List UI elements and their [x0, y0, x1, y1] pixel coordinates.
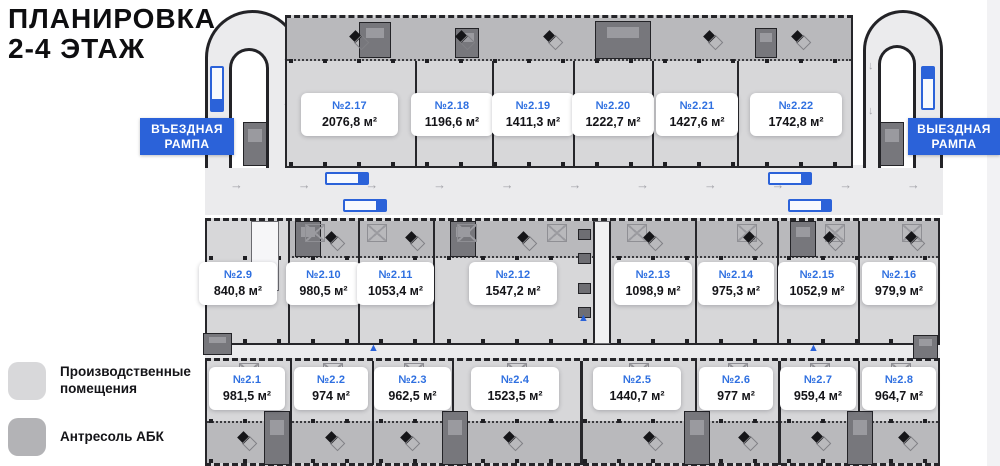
unit-area: 981,5 м²	[212, 388, 282, 404]
stairs-icon: ▲	[808, 342, 819, 354]
unit-number: №2.18	[414, 100, 490, 114]
dock-icon	[505, 433, 521, 449]
stairs-icon: ▲	[368, 342, 379, 354]
unit-number: №2.7	[783, 374, 853, 388]
unit-label: №2.4 1523,5 м²	[471, 367, 559, 410]
unit-area: 977 м²	[702, 388, 770, 404]
unit-area: 1440,7 м²	[596, 388, 678, 404]
unit-area: 1053,4 м²	[360, 283, 431, 299]
dock-icon	[351, 32, 367, 48]
screen-edge	[987, 0, 1000, 466]
dock-icon	[705, 32, 721, 48]
entry-ramp-stairwell	[243, 122, 267, 166]
unit-area: 959,4 м²	[783, 388, 853, 404]
dock-icon	[402, 433, 418, 449]
unit-area: 1098,9 м²	[617, 283, 689, 299]
unit-label: №2.11 1053,4 м²	[357, 262, 434, 305]
unit-area: 2076,8 м²	[304, 114, 395, 130]
dock-icon	[457, 32, 473, 48]
arrow-right-icon: →	[230, 178, 243, 191]
unit-label: №2.17 2076,8 м²	[301, 93, 398, 136]
unit-label: №2.22 1742,8 м²	[750, 93, 842, 136]
corridor-door	[578, 253, 591, 264]
truck-icon	[788, 199, 832, 212]
corridor-door	[578, 283, 591, 294]
unit-area: 1523,5 м²	[474, 388, 556, 404]
arrow-right-icon: →	[568, 178, 581, 191]
unit-label: №2.7 959,4 м²	[780, 367, 856, 410]
legend-swatch-mezzanine	[8, 418, 46, 456]
unit-area: 840,8 м²	[202, 283, 274, 299]
central-corridor	[593, 221, 611, 344]
page-title: ПЛАНИРОВКА 2-4 ЭТАЖ	[8, 4, 216, 64]
dock-icon	[645, 433, 661, 449]
unit-number: №2.16	[865, 269, 933, 283]
page-title-line2: 2-4 ЭТАЖ	[8, 34, 216, 64]
unit-area: 1052,9 м²	[781, 283, 853, 299]
dock-icon	[907, 233, 923, 249]
lane-arrow-icon: ↓	[868, 105, 874, 117]
legend-item-production: Производственные помещения	[8, 362, 220, 400]
arrow-right-icon: →	[907, 178, 920, 191]
dock-icon	[793, 32, 809, 48]
dock-door	[367, 224, 387, 242]
unit-label: №2.3 962,5 м²	[374, 367, 451, 410]
dock-icon	[900, 433, 916, 449]
stairwell	[790, 221, 816, 257]
dock-icon	[407, 233, 423, 249]
unit-area: 979,9 м²	[865, 283, 933, 299]
arrow-right-icon: →	[636, 178, 649, 191]
top-building-block	[285, 15, 853, 168]
unit-number: №2.17	[304, 100, 395, 114]
unit-area: 974 м²	[297, 388, 365, 404]
unit-number: №2.15	[781, 269, 853, 283]
truck-icon	[921, 66, 935, 110]
truck-icon	[325, 172, 369, 185]
dock-icon	[745, 233, 761, 249]
unit-label: №2.12 1547,2 м²	[469, 262, 557, 305]
legend-label: Антресоль АБК	[60, 429, 220, 446]
arrow-right-icon: →	[501, 178, 514, 191]
unit-number: №2.21	[659, 100, 735, 114]
stairwell	[442, 411, 468, 465]
unit-area: 1742,8 м²	[753, 114, 839, 130]
arrow-right-icon: →	[298, 178, 311, 191]
dock-icon	[545, 32, 561, 48]
unit-area: 962,5 м²	[377, 388, 448, 404]
arrow-right-icon: →	[704, 178, 717, 191]
dock-door	[547, 224, 567, 242]
legend-swatch-production	[8, 362, 46, 400]
unit-area: 1411,3 м²	[495, 114, 571, 130]
stairwell	[264, 411, 290, 465]
unit-label: №2.18 1196,6 м²	[411, 93, 493, 136]
unit-label: №2.5 1440,7 м²	[593, 367, 681, 410]
elevator-block	[203, 333, 232, 355]
dock-icon	[645, 233, 661, 249]
floor-plan: ПЛАНИРОВКА 2-4 ЭТАЖ ↑ ↑ ↓ ↓ → →	[0, 0, 1000, 466]
unit-number: №2.11	[360, 269, 431, 283]
unit-number: №2.3	[377, 374, 448, 388]
unit-area: 975,3 м²	[701, 283, 771, 299]
dock-icon	[825, 233, 841, 249]
unit-number: №2.2	[297, 374, 365, 388]
dock-icon	[740, 433, 756, 449]
unit-number: №2.19	[495, 100, 571, 114]
corridor-door	[578, 229, 591, 240]
unit-number: №2.14	[701, 269, 771, 283]
dock-icon	[327, 433, 343, 449]
unit-number: №2.4	[474, 374, 556, 388]
legend-item-mezzanine: Антресоль АБК	[8, 418, 220, 456]
lane-arrow-icon: ↓	[868, 60, 874, 72]
unit-label: №2.2 974 м²	[294, 367, 368, 410]
unit-number: №2.8	[865, 374, 933, 388]
dock-icon	[813, 433, 829, 449]
unit-area: 1196,6 м²	[414, 114, 490, 130]
exit-ramp-badge: ВЫЕЗДНАЯ РАМПА	[908, 118, 1000, 155]
unit-label: №2.14 975,3 м²	[698, 262, 774, 305]
dock-door	[305, 224, 325, 242]
unit-label: №2.1 981,5 м²	[209, 367, 285, 410]
stairwell	[847, 411, 873, 465]
dock-door	[457, 224, 477, 242]
unit-label: №2.19 1411,3 м²	[492, 93, 574, 136]
unit-label: №2.13 1098,9 м²	[614, 262, 692, 305]
stairwell	[684, 411, 710, 465]
unit-label: №2.20 1222,7 м²	[572, 93, 654, 136]
unit-number: №2.5	[596, 374, 678, 388]
stairs-icon: ▲	[578, 312, 589, 324]
unit-area: 1547,2 м²	[472, 283, 554, 299]
unit-number: №2.1	[212, 374, 282, 388]
unit-number: №2.13	[617, 269, 689, 283]
unit-label: №2.10 980,5 м²	[286, 262, 361, 305]
unit-area: 1427,6 м²	[659, 114, 735, 130]
unit-label: №2.15 1052,9 м²	[778, 262, 856, 305]
elevator-block	[913, 335, 938, 359]
truck-icon	[343, 199, 387, 212]
entry-ramp-badge: ВЪЕЗДНАЯ РАМПА	[140, 118, 234, 155]
stairwell	[755, 28, 777, 58]
dock-icon	[327, 233, 343, 249]
unit-number: №2.10	[289, 269, 358, 283]
arrow-right-icon: →	[839, 178, 852, 191]
legend-label: Производственные помещения	[60, 364, 220, 398]
unit-area: 964,7 м²	[865, 388, 933, 404]
unit-number: №2.6	[702, 374, 770, 388]
unit-number: №2.22	[753, 100, 839, 114]
unit-number: №2.20	[575, 100, 651, 114]
truck-icon	[768, 172, 812, 185]
unit-label: №2.16 979,9 м²	[862, 262, 936, 305]
unit-label: №2.21 1427,6 м²	[656, 93, 738, 136]
unit-label: №2.6 977 м²	[699, 367, 773, 410]
unit-number: №2.9	[202, 269, 274, 283]
stairwell	[595, 21, 651, 59]
unit-area: 1222,7 м²	[575, 114, 651, 130]
unit-area: 980,5 м²	[289, 283, 358, 299]
truck-icon	[210, 66, 224, 112]
arrow-right-icon: →	[433, 178, 446, 191]
unit-label: №2.8 964,7 м²	[862, 367, 936, 410]
page-title-line1: ПЛАНИРОВКА	[8, 4, 216, 34]
unit-label: №2.9 840,8 м²	[199, 262, 277, 305]
unit-number: №2.12	[472, 269, 554, 283]
dock-icon	[239, 433, 255, 449]
dock-icon	[519, 233, 535, 249]
exit-ramp-stairwell	[880, 122, 904, 166]
